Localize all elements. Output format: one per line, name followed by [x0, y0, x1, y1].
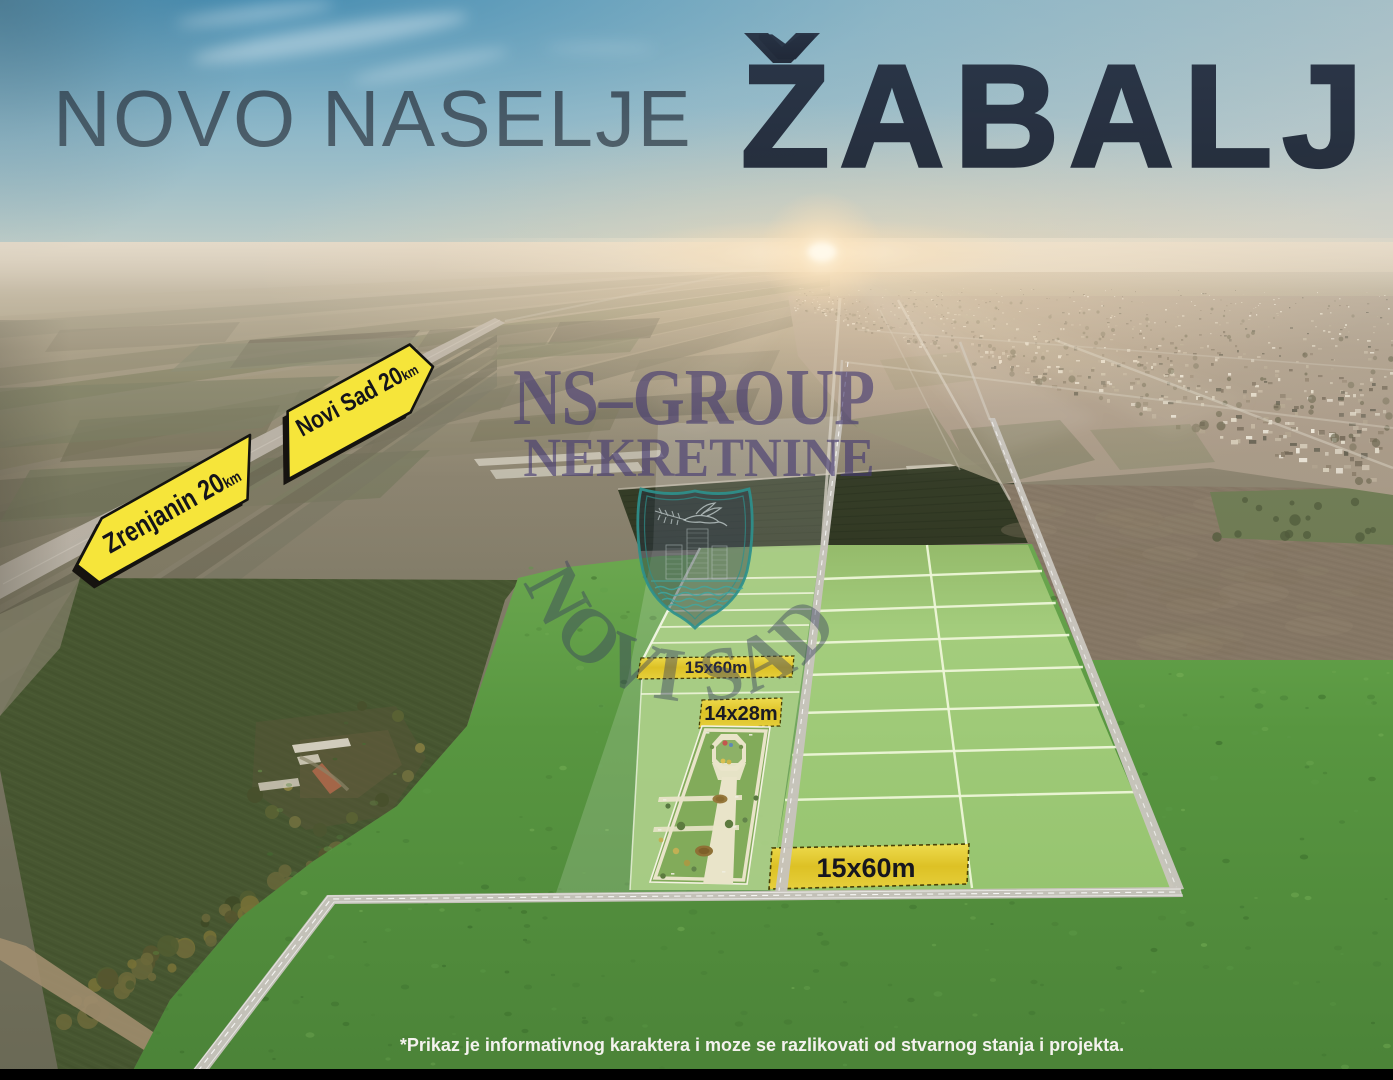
svg-text:*Prikaz je informativnog karak: *Prikaz je informativnog karaktera i moz…	[400, 1035, 1124, 1055]
svg-text:ŽABALJ: ŽABALJ	[741, 35, 1373, 197]
svg-text:15x60m: 15x60m	[816, 853, 915, 883]
svg-text:NEKRETNINE: NEKRETNINE	[523, 427, 874, 489]
